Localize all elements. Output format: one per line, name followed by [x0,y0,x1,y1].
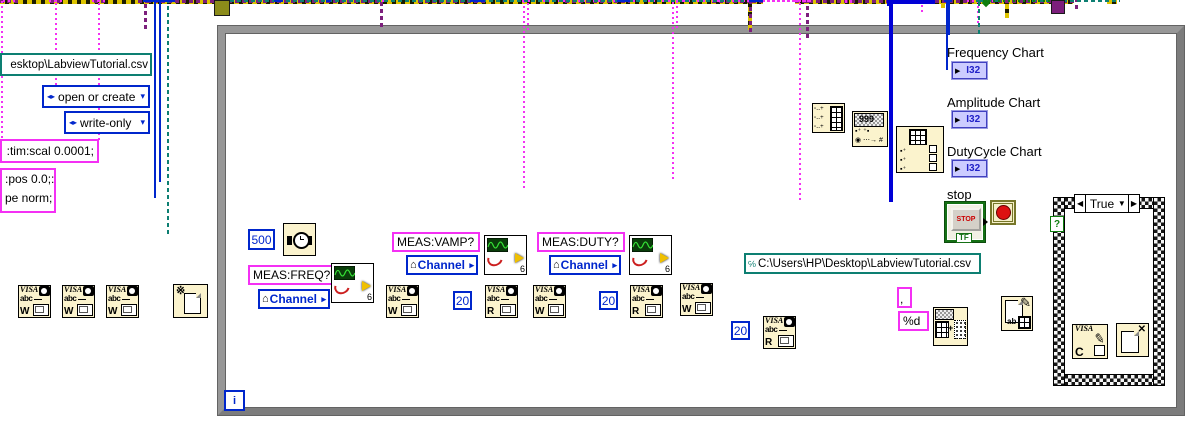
array-to-spreadsheet-string-node[interactable]: + [933,307,968,346]
numeric-value: 20 [602,294,615,308]
wire-junction [982,0,990,7]
string-constant-value: MEAS:VAMP? [397,235,474,249]
visa-tunnel[interactable] [1051,0,1065,14]
numeric-wire [948,0,950,35]
i32-type-label: I32 [960,114,986,125]
csv-path-constant[interactable]: ℅ C:\Users\HP\Desktop\LabviewTutorial.cs… [744,253,981,274]
write-letter: W [388,306,397,317]
visa-logo: VISA [20,285,38,294]
instrument-icon [548,304,564,316]
numeric-value: 500 [251,233,271,247]
numeric-wire [749,0,763,2]
loop-condition-terminal[interactable] [990,200,1016,225]
string-wire [799,0,812,2]
probe-arrow-icon [362,281,371,291]
string-array-icon [954,320,966,339]
string-wire [845,0,853,3]
visa-write-node[interactable]: VISA abc W [18,285,51,318]
999-glyph: 999 [859,114,874,124]
byte-count-constant[interactable]: 20 [453,291,472,310]
close-letter: C [1075,345,1084,359]
abc-glyph: abc [487,294,499,303]
scope-screen-icon [632,238,653,252]
write-letter: W [682,304,691,315]
case-structure-border[interactable] [1053,374,1165,386]
access-mode-enum[interactable]: ◂▸ write-only ▾ [64,111,150,134]
visa-write-node[interactable]: VISA abc W [680,283,713,316]
channel-io-constant[interactable]: ⌂ Channel ▸ [406,255,478,275]
write-letter: W [535,306,544,317]
abc-glyph: abc [765,325,777,334]
string-wire [55,0,62,2]
duty-query-constant[interactable]: MEAS:DUTY? [537,232,625,252]
visa-logo: VISA [535,285,553,294]
stop-label: stop [947,187,972,202]
frequency-chart-terminal[interactable]: ▶ I32 [952,62,987,79]
instrument-icon [500,304,516,316]
visa-write-node[interactable]: VISA abc W [533,285,566,318]
path-type-icon: ℅ [748,259,756,269]
timeout-clock-icon [651,286,662,296]
visa-close-node[interactable]: VISA C ✎ [1072,324,1108,359]
timeout-clock-icon [407,286,418,296]
array-wire [889,0,893,202]
while-loop-border[interactable] [218,26,1184,415]
dutycycle-chart-label: DutyCycle Chart [947,144,1042,159]
abc-glyph: abc [632,294,644,303]
timeout-clock-icon [83,286,94,296]
visa-wire [144,0,147,29]
tf-type-label: TF [956,233,972,243]
visa-write-node[interactable]: VISA abc W [62,285,95,318]
previous-case-arrow[interactable]: ◀ [1075,195,1086,212]
pencil-icon: ✎ [1020,295,1031,311]
labview-block-diagram: esktop\LabviewTutorial.csv ◂▸ open or cr… [0,0,1187,424]
string-constant-value: :tim:scal 0.0001; [7,144,94,158]
output-cell-icon [929,163,937,171]
numeric-wire [159,0,175,2]
numeric-wire [944,0,952,2]
scope-screen-icon [334,266,355,280]
numeric-wire [326,0,331,2]
file-page-icon [184,293,201,314]
scpi-timebase-constant[interactable]: :tim:scal 0.0001; [0,139,99,163]
timeout-clock-icon [784,317,795,327]
amplitude-chart-label: Amplitude Chart [947,95,1040,110]
case-selector-value: True [1086,197,1118,211]
frequency-chart-label: Frequency Chart [947,45,1044,60]
case-selector[interactable]: ◀ True ▼ ▶ [1074,194,1140,213]
dutycycle-chart-terminal[interactable]: ▶ I32 [952,160,987,177]
close-x-icon: ✕ [1138,324,1146,335]
open-mode-value: open or create [58,90,135,104]
instrument-icon [77,304,93,316]
home-icon: ⌂ [262,293,269,305]
abc-glyph: abc [682,292,694,301]
string-wire [527,0,529,30]
path-wire [978,0,980,34]
watch-band-icon [287,236,292,245]
numeric-wire [159,0,161,182]
visa-logo: VISA [108,285,126,294]
loop-iteration-terminal[interactable]: i [224,390,245,411]
read-letter: R [487,306,494,317]
abc-glyph: abc [64,294,76,303]
dropdown-icon[interactable]: ▾ [137,91,145,102]
file-path-constant[interactable]: esktop\LabviewTutorial.csv [0,53,152,76]
next-case-arrow[interactable]: ▶ [1128,195,1139,212]
channel-name: Channel [561,258,608,272]
array-wire [889,0,935,4]
wait-ms-constant[interactable]: 500 [248,229,275,250]
enum-type-icon: ◂▸ [47,92,55,101]
build-array-node[interactable]: ▫‥+ ▫‥+ ▫‥+ [812,103,845,133]
question-mark: ? [1054,219,1060,230]
dropdown-icon[interactable]: ▾ [137,117,145,128]
i32-type-label: I32 [960,163,986,174]
byte-count-constant[interactable]: 20 [599,291,618,310]
write-grid-icon [1018,316,1031,329]
numeric-wire [470,0,485,2]
io-arrow-icon[interactable]: ▸ [612,260,617,271]
timeout-clock-icon [506,286,517,296]
string-constant-value: MEAS:DUTY? [542,235,619,249]
string-wire [523,0,525,188]
string-constant-value: MEAS:FREQ? [253,268,330,282]
write-letter: W [20,306,29,317]
format-string-constant[interactable]: %d [898,311,929,331]
visa-logo: VISA [1075,324,1093,333]
timeout-clock-icon [39,286,50,296]
inout-glyph: ▪⁺ ⁺▪ [855,127,869,135]
path-constant-value: C:\Users\HP\Desktop\LabviewTutorial.csv [758,258,971,270]
vamp-query-constant[interactable]: MEAS:VAMP? [392,232,480,252]
file-page-icon [1121,331,1139,353]
string-wire [799,0,801,200]
to-number-glyph: ◉ ⋯→ # [855,136,883,144]
enum-type-icon: ◂▸ [69,118,77,127]
write-letter: W [108,306,117,317]
visa-wire [749,0,752,32]
home-icon: ⌂ [553,259,560,271]
index-array-node[interactable]: ▪⁺ ▪⁺ ▪⁺ [896,126,944,173]
write-letter: W [64,306,73,317]
scope-config-vi[interactable]: 6 [331,263,374,303]
probe-arrow-icon [660,253,669,263]
i32-type-label: I32 [960,65,986,76]
string-wire [672,0,674,179]
refnum-wire [1063,0,1120,2]
plus-glyph: + [948,323,953,333]
path-constant-value: esktop\LabviewTutorial.csv [10,59,148,71]
index-row-glyph: ▪⁺ [900,147,906,155]
index-row-glyph: ▪⁺ [900,165,906,173]
visa-wire [806,0,809,38]
stop-condition-icon [996,205,1011,220]
abc-glyph: abc [20,294,32,303]
string-constant-line: pe norm; [5,189,51,208]
instrument-icon [33,304,49,316]
visa-logo: VISA [487,285,505,294]
visa-logo: VISA [682,283,700,292]
boolean-wire [988,0,1052,2]
ab-text-icon: ab [1007,317,1016,326]
array-grid-icon [909,129,927,145]
read-letter: R [632,306,639,317]
channel-io-constant[interactable]: ⌂ Channel ▸ [258,289,330,309]
instrument-icon [121,304,137,316]
delimiter-constant[interactable]: , [897,287,912,308]
read-letter: R [765,337,772,348]
case-selector-terminal[interactable]: ? [1050,216,1064,232]
write-text-file-node[interactable]: ✎ ab [1001,296,1033,331]
visa-logo: VISA [64,285,82,294]
abc-glyph: abc [535,294,547,303]
path-wire [167,0,169,234]
stop-button[interactable]: STOP [951,208,981,231]
case-dropdown-icon[interactable]: ▼ [1118,199,1128,208]
scope-config-vi[interactable]: 6 [484,235,527,275]
array-row-glyph: ▫‥+ [814,106,824,112]
amplitude-chart-terminal[interactable]: ▶ I32 [952,111,987,128]
wire-junction [887,0,893,6]
string-wire [98,0,106,2]
channel-name: Channel [270,292,317,306]
io-arrow-icon[interactable]: ▸ [321,294,326,305]
visa-wire [380,0,383,27]
instrument-icon [695,302,711,314]
string-wire [3,0,18,2]
stop-button-terminal[interactable]: STOP TF [945,202,985,242]
output-cell-icon [929,145,937,153]
iteration-label: i [233,395,236,407]
freq-query-constant[interactable]: MEAS:FREQ? [248,265,333,285]
stamp-icon [1094,345,1105,356]
visa-read-node[interactable]: VISA abc R [763,316,796,349]
format-header-icon [935,309,954,320]
case-structure-border[interactable] [1153,197,1165,386]
home-icon: ⌂ [410,259,417,271]
numeric-wire [154,0,156,198]
string-constant-value: %d [903,314,920,328]
visa-read-node[interactable]: VISA abc R [630,285,663,318]
numeric-value: 20 [456,294,469,308]
scpi-offset-constant[interactable]: :pos 0.0;: pe norm; [0,168,56,213]
scope-screen-icon [487,238,508,252]
timeout-clock-icon [127,286,138,296]
string-constant-value: , [900,292,903,306]
timeout-clock-icon [554,286,565,296]
terminal-nub-icon [983,218,988,226]
string-constant-line: :pos 0.0;: [5,170,51,189]
numeric-wire [274,0,283,2]
wait-ms-node[interactable] [283,223,316,256]
visa-logo: VISA [765,316,783,325]
probe-arrow-icon [515,253,524,263]
open-create-file-node[interactable]: ※ [173,284,208,318]
error-tunnel[interactable] [214,0,230,16]
channel-number: 6 [367,292,372,302]
channel-io-constant[interactable]: ⌂ Channel ▸ [549,255,621,275]
visa-write-node[interactable]: VISA abc W [386,285,419,318]
instrument-icon [645,304,661,316]
visa-write-node[interactable]: VISA abc W [106,285,139,318]
index-row-glyph: ▪⁺ [900,156,906,164]
array-grid-icon [830,106,843,131]
scope-config-vi[interactable]: 6 [629,235,672,275]
numeric-value: 20 [734,324,747,338]
visa-logo: VISA [388,285,406,294]
access-mode-value: write-only [80,116,131,130]
channel-name: Channel [418,258,465,272]
timeout-clock-icon [701,284,712,294]
watch-face-icon [293,232,310,249]
array-row-glyph: ▫‥+ [814,115,824,121]
byte-count-constant[interactable]: 20 [731,321,750,340]
channel-number: 6 [520,264,525,274]
string-wire [676,0,678,28]
instrument-icon [778,335,794,347]
array-grid-icon [935,321,949,338]
visa-read-node[interactable]: VISA abc R [485,285,518,318]
output-cell-icon [929,154,937,162]
abc-glyph: abc [108,294,120,303]
channel-number: 6 [665,264,670,274]
instrument-icon [401,304,417,316]
visa-logo: VISA [632,285,650,294]
numeric-wire [617,0,630,2]
open-mode-enum[interactable]: ◂▸ open or create ▾ [42,85,150,108]
close-file-node[interactable]: ✕ [1116,323,1149,357]
abc-glyph: abc [388,294,400,303]
io-arrow-icon[interactable]: ▸ [469,260,474,271]
array-row-glyph: ▫‥+ [814,124,824,130]
decimal-string-to-number-node[interactable]: 999 ▪⁺ ⁺▪ ◉ ⋯→ # [852,111,888,147]
